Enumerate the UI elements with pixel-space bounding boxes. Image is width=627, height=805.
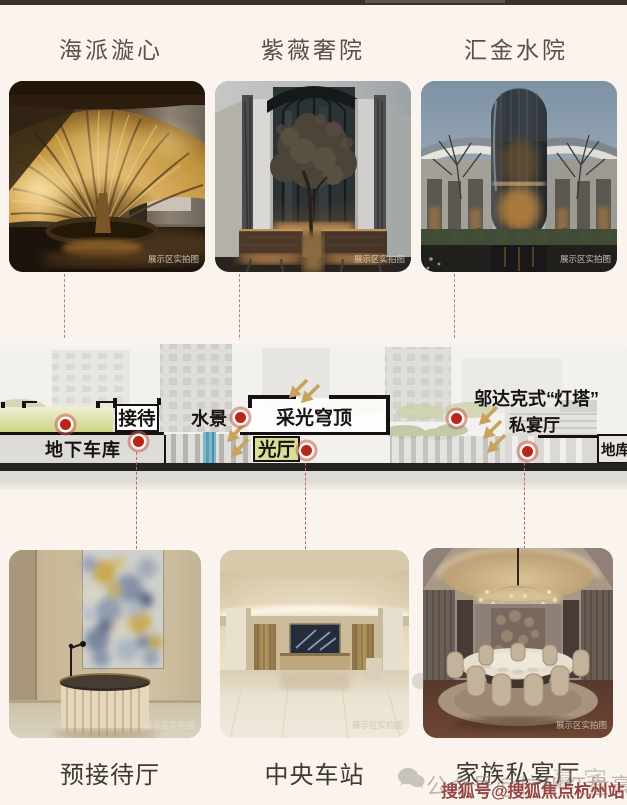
svg-text:展示区实拍图: 展示区实拍图	[144, 720, 195, 730]
svg-text:展示区实拍图: 展示区实拍图	[560, 254, 611, 264]
svg-text:展示区实拍图: 展示区实拍图	[352, 720, 403, 730]
svg-text:展示区实拍图: 展示区实拍图	[148, 254, 199, 264]
svg-text:展示区实拍图: 展示区实拍图	[354, 254, 405, 264]
svg-text:展示区实拍图: 展示区实拍图	[556, 720, 607, 730]
